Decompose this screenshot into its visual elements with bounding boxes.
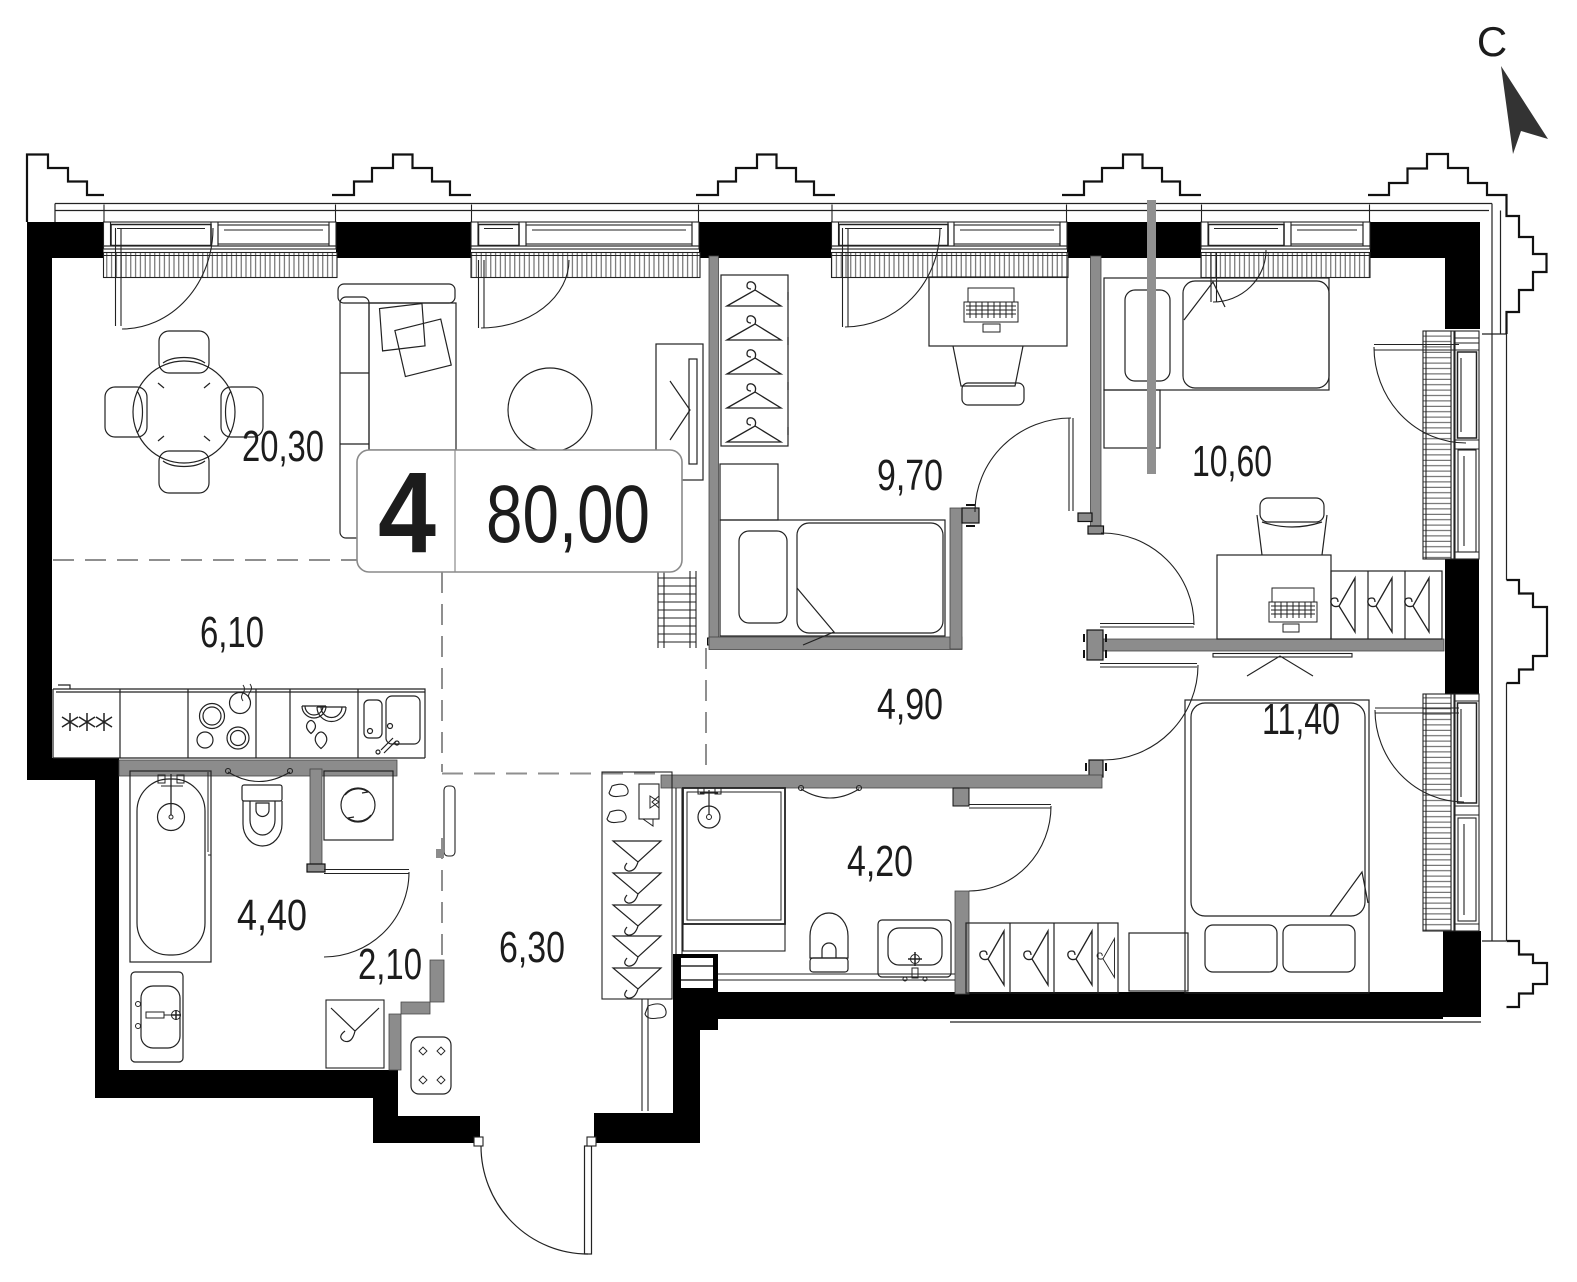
svg-text:6,30: 6,30 xyxy=(499,923,565,972)
svg-text:9,70: 9,70 xyxy=(877,451,943,500)
svg-text:4,20: 4,20 xyxy=(847,837,913,886)
svg-text:C: C xyxy=(1477,18,1507,65)
svg-text:20,30: 20,30 xyxy=(242,422,324,471)
svg-text:80,00: 80,00 xyxy=(486,469,650,560)
svg-text:4: 4 xyxy=(378,449,436,577)
svg-text:4,40: 4,40 xyxy=(237,891,307,940)
svg-text:6,10: 6,10 xyxy=(200,608,264,657)
svg-text:2,10: 2,10 xyxy=(358,940,422,989)
svg-text:4,90: 4,90 xyxy=(877,680,943,729)
svg-text:10,60: 10,60 xyxy=(1192,437,1272,486)
svg-text:11,40: 11,40 xyxy=(1262,695,1340,744)
